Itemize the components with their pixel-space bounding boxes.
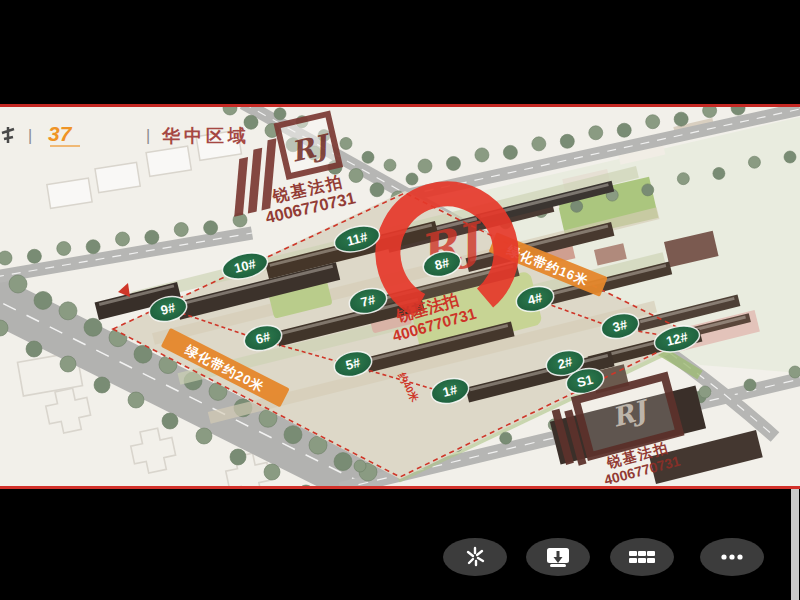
tree — [384, 159, 396, 171]
divider: | — [28, 127, 32, 144]
divider: | — [146, 127, 150, 144]
tree — [362, 151, 374, 163]
tree — [145, 230, 159, 244]
tree — [642, 184, 654, 196]
tree — [748, 156, 760, 168]
tree — [128, 392, 144, 408]
tree — [418, 159, 432, 173]
tree — [674, 112, 688, 126]
brand-number: 37 — [48, 122, 73, 145]
tree — [230, 449, 246, 465]
tree — [274, 108, 286, 120]
tree — [116, 232, 130, 246]
tree — [589, 126, 603, 140]
tree — [34, 291, 52, 309]
tree — [789, 366, 800, 378]
tree — [503, 145, 517, 159]
letterbox-top — [0, 0, 800, 104]
tree — [26, 341, 42, 357]
tree — [370, 183, 384, 197]
tree — [340, 137, 352, 149]
download-icon — [540, 545, 576, 569]
tree — [713, 167, 725, 179]
viewer-toolbar — [0, 534, 800, 582]
grid-icon — [624, 545, 660, 569]
tree — [744, 379, 756, 391]
tree — [0, 251, 12, 265]
tree — [475, 148, 489, 162]
tree — [699, 386, 711, 398]
tree — [204, 221, 218, 235]
tree — [57, 242, 71, 256]
tree — [560, 134, 574, 148]
more-icon — [714, 545, 750, 569]
tree — [174, 223, 188, 237]
tree — [84, 318, 102, 336]
tree — [86, 240, 100, 254]
tree — [784, 151, 796, 163]
tree — [617, 123, 631, 137]
tree — [284, 426, 302, 444]
tree — [703, 107, 717, 118]
tree — [94, 377, 110, 393]
tree — [571, 200, 583, 212]
tree — [9, 275, 27, 293]
tree — [59, 302, 77, 320]
tree — [196, 428, 212, 444]
tree — [500, 432, 512, 444]
tree — [27, 249, 41, 263]
tree — [60, 356, 76, 372]
tree — [532, 137, 546, 151]
grid-view-button[interactable] — [610, 538, 674, 576]
region-label: 华中区域 — [161, 126, 250, 146]
tree — [354, 460, 366, 472]
tree — [334, 453, 352, 471]
site-plan-photo[interactable]: 约40米 绿化带约20米绿化带约16米 | 37 | 华中区域 RJ 锐基法拍 … — [0, 107, 800, 486]
sparkle-icon — [457, 545, 493, 569]
tree — [264, 464, 280, 480]
tree — [406, 173, 418, 185]
tree — [677, 173, 689, 185]
more-button[interactable] — [700, 538, 764, 576]
image-viewer: 约40米 绿化带约20米绿化带约16米 | 37 | 华中区域 RJ 锐基法拍 … — [0, 0, 800, 600]
tree — [349, 169, 363, 183]
download-button[interactable] — [526, 538, 590, 576]
tree — [646, 115, 660, 129]
tree — [162, 413, 178, 429]
tree — [446, 156, 460, 170]
sparkle-button[interactable] — [443, 538, 507, 576]
